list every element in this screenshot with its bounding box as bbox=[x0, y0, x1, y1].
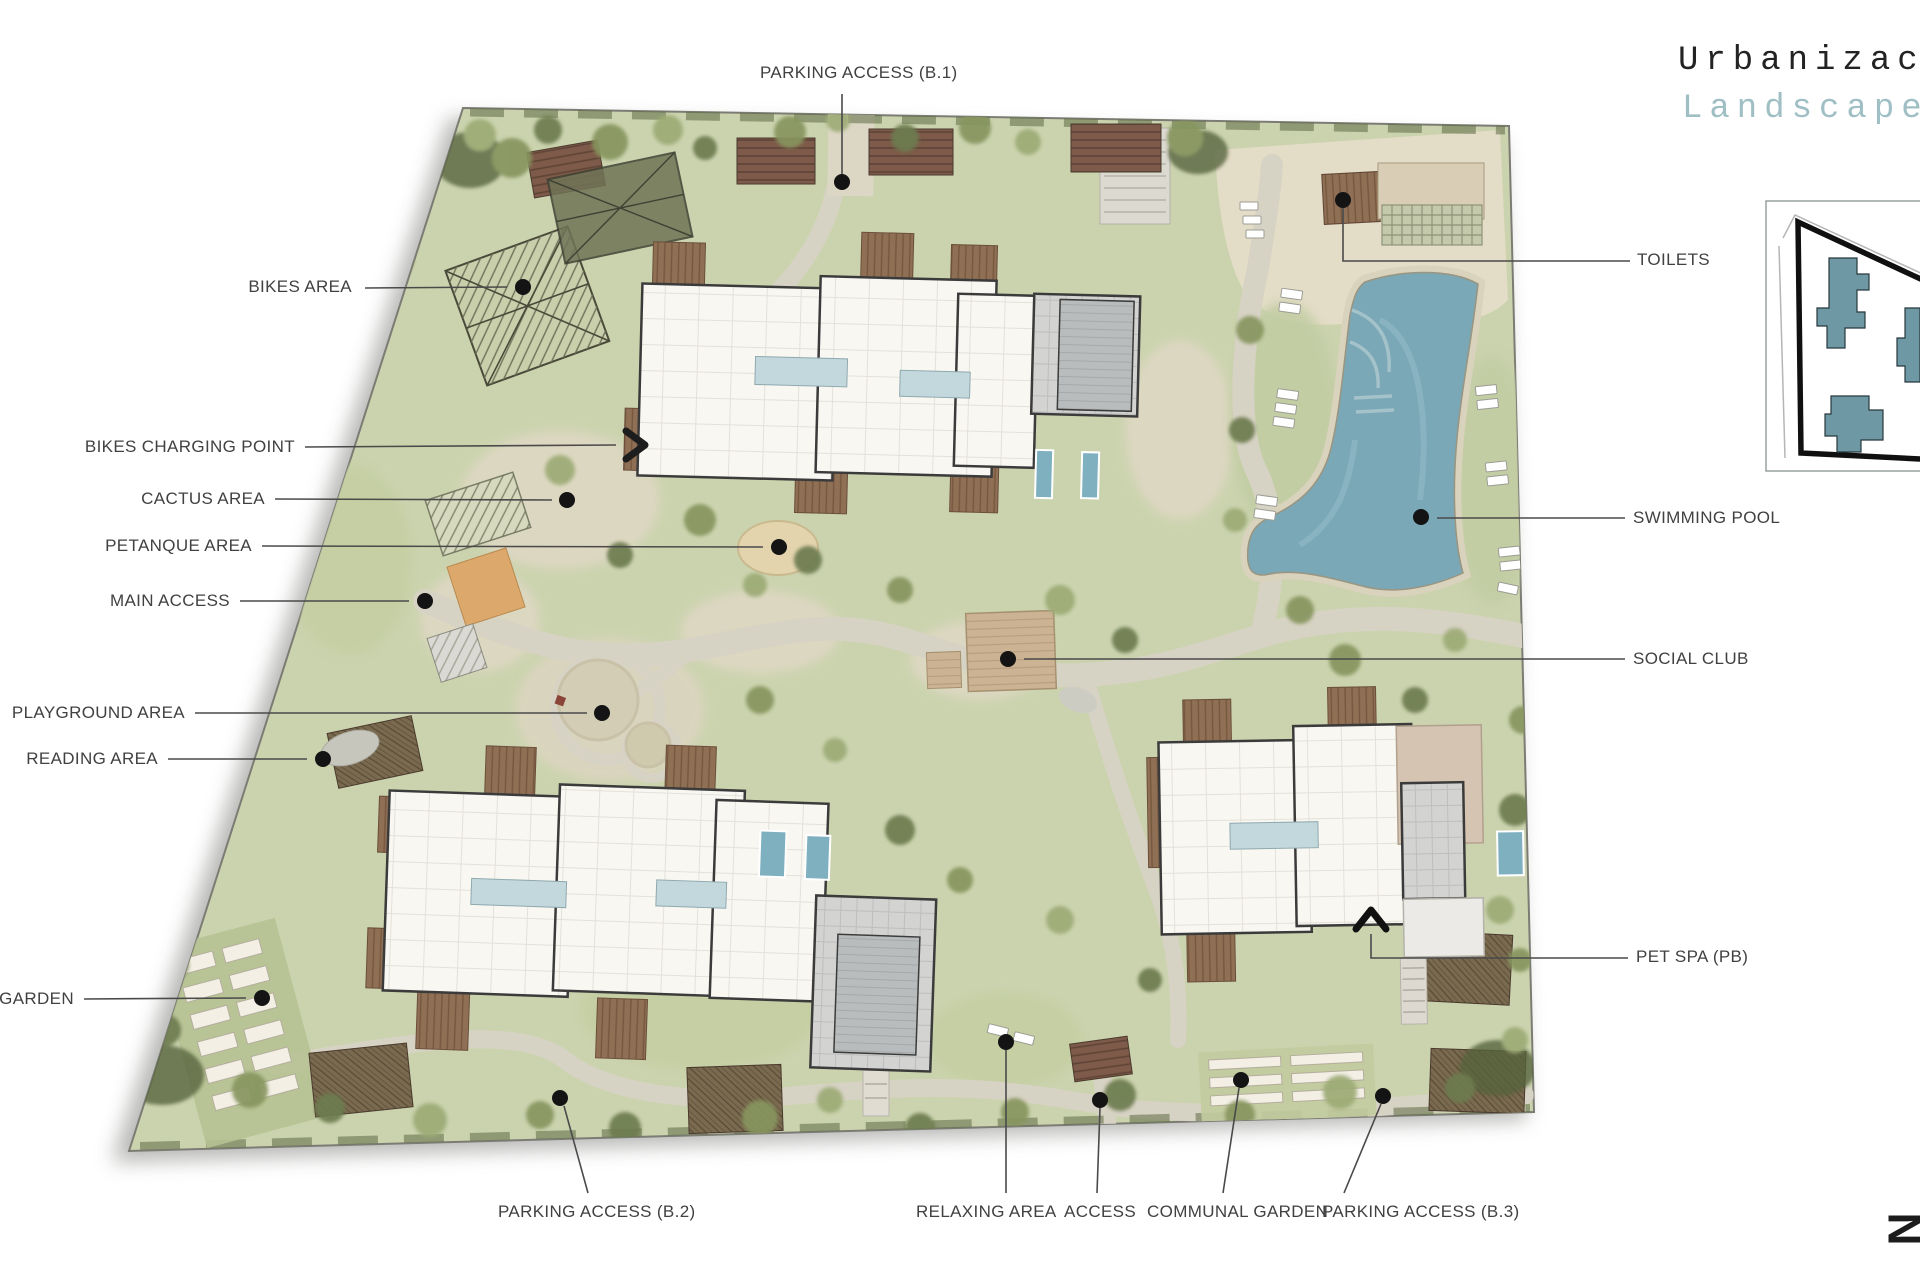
label-relaxing-area: RELAXING AREA bbox=[916, 1201, 1057, 1223]
label-parking-access-b2: PARKING ACCESS (B.2) bbox=[498, 1201, 696, 1223]
label-toilets: TOILETS bbox=[1637, 249, 1710, 271]
sheet-subtitle: Landscape bbox=[1682, 90, 1920, 128]
label-swimming-pool: SWIMMING POOL bbox=[1633, 507, 1780, 529]
label-parking-access-b1: PARKING ACCESS (B.1) bbox=[760, 62, 958, 84]
label-pet-spa: PET SPA (PB) bbox=[1636, 946, 1748, 968]
b3-steps bbox=[1400, 958, 1427, 1024]
label-main-access: MAIN ACCESS bbox=[110, 590, 230, 612]
building-b2-roof bbox=[810, 895, 936, 1071]
site-plan-drawing bbox=[0, 0, 1920, 1280]
label-communal-garden-clipped: L GARDEN bbox=[0, 988, 74, 1010]
sheet-title: Urbanizac bbox=[1678, 42, 1920, 80]
building-b3-roof bbox=[1401, 782, 1465, 899]
landscape-masterplan-sheet: { "title": { "line1": "Urbanizac", "line… bbox=[0, 0, 1920, 1280]
label-bikes-area: BIKES AREA bbox=[248, 276, 352, 298]
label-playground-area: PLAYGROUND AREA bbox=[12, 702, 185, 724]
label-petanque-area: PETANQUE AREA bbox=[105, 535, 252, 557]
building-b1-roof bbox=[1031, 294, 1140, 417]
label-bikes-charging-point: BIKES CHARGING POINT bbox=[85, 436, 295, 458]
key-plan bbox=[1765, 200, 1920, 475]
label-parking-access-b3: PARKING ACCESS (B.3) bbox=[1322, 1201, 1520, 1223]
label-social-club: SOCIAL CLUB bbox=[1633, 648, 1749, 670]
label-cactus-area: CACTUS AREA bbox=[141, 488, 265, 510]
label-reading-area: READING AREA bbox=[26, 748, 158, 770]
label-access: ACCESS bbox=[1064, 1201, 1136, 1223]
north-arrow: N bbox=[1878, 1212, 1920, 1245]
label-communal-garden: COMMUNAL GARDEN bbox=[1147, 1201, 1328, 1223]
